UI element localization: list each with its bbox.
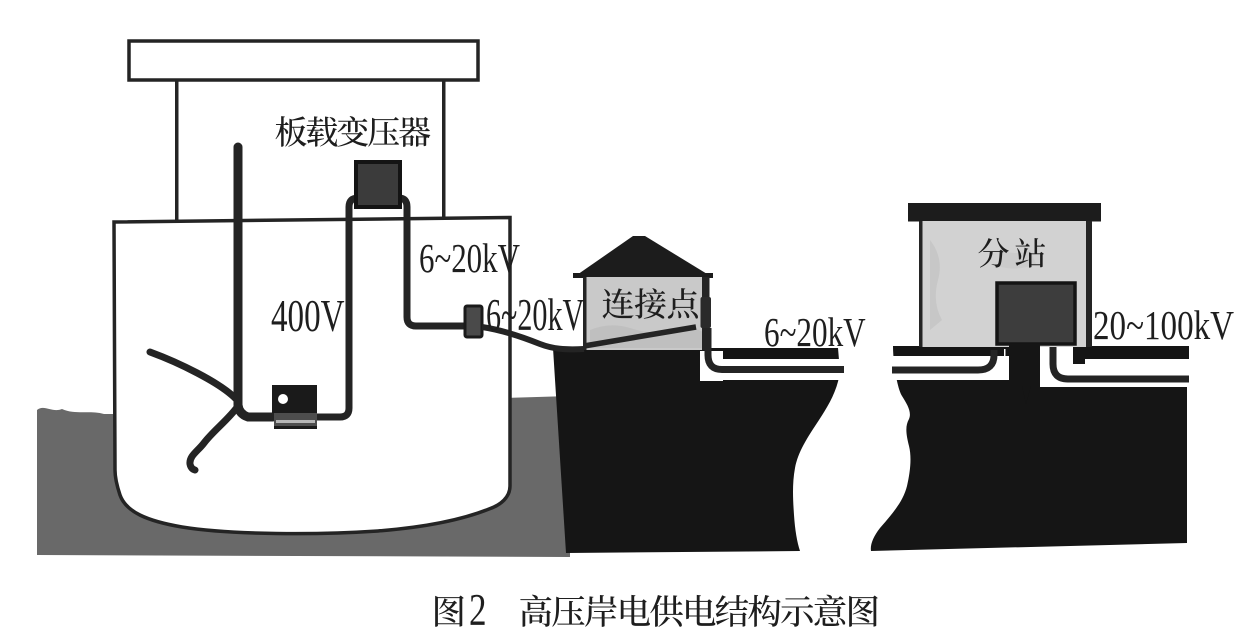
svg-text:2: 2 <box>469 585 487 635</box>
svg-text:6~20kV: 6~20kV <box>419 236 520 281</box>
svg-text:6~20kV: 6~20kV <box>486 290 584 341</box>
svg-text:6~20kV: 6~20kV <box>764 310 866 355</box>
svg-text:400V: 400V <box>271 290 345 342</box>
svg-text:20~100kV: 20~100kV <box>1093 304 1234 349</box>
